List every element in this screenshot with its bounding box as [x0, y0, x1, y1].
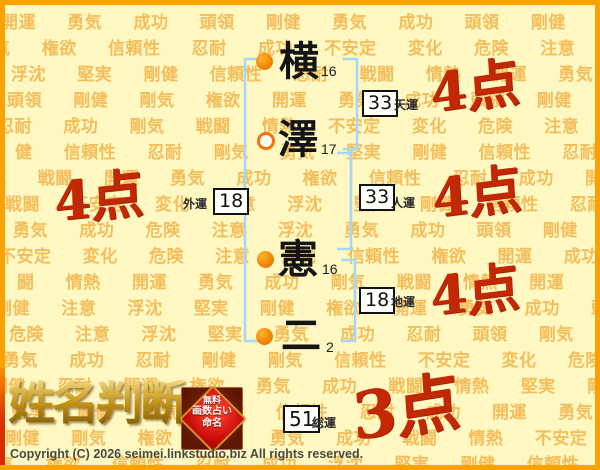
stroke-count: 2	[326, 340, 334, 354]
page-frame: 開運 勇気 成功 頭領 剛健 勇気 成功 頭領 剛健 剛気気 権欲 信頼性 忍耐…	[0, 0, 600, 470]
jinun-score: 4点	[431, 162, 523, 226]
chiun-score: 4点	[429, 260, 521, 324]
name-chart: 横 16 澤 17 憲 16 二 2 33 天運 4点 外運 18 4点 33 …	[0, 0, 600, 470]
name-char-bullet-filled	[256, 328, 273, 345]
gaiun-value-box: 18	[213, 188, 249, 215]
free-naming-badge[interactable]: 無料 画数占い 命名	[181, 387, 243, 450]
tenun-value-box: 33	[362, 90, 398, 117]
jinun-label: 人運	[391, 197, 415, 209]
stroke-count: 17	[321, 142, 337, 156]
site-logo[interactable]: 姓名判断	[8, 380, 184, 427]
heaven-fortune-bracket	[343, 59, 357, 149]
name-character: 横	[279, 42, 319, 82]
copyright-text: Copyright (C) 2026 seimei.linkstudio.biz…	[10, 447, 363, 461]
earth-fortune-bracket	[341, 260, 355, 341]
name-char-bullet-filled	[256, 53, 273, 70]
badge-line: 画数占い	[182, 406, 242, 418]
name-character: 憲	[278, 240, 318, 280]
stroke-count: 16	[321, 64, 337, 78]
badge-text: 無料 画数占い 命名	[182, 395, 242, 430]
souun-label: 総運	[312, 417, 336, 429]
name-character: 澤	[278, 120, 318, 160]
chiun-value-box: 18	[359, 287, 395, 314]
name-char-bullet-filled	[257, 251, 274, 268]
person-fortune-bracket	[337, 153, 351, 249]
badge-line: 無料	[182, 395, 242, 406]
name-character: 二	[281, 316, 321, 356]
tenun-label: 天運	[394, 99, 418, 111]
chiun-label: 地運	[391, 296, 415, 308]
tenun-score: 4点	[429, 56, 522, 122]
badge-line: 命名	[182, 418, 242, 430]
name-char-bullet-open	[257, 132, 275, 150]
gaiun-score: 4点	[53, 167, 144, 229]
jinun-value-box: 33	[359, 184, 395, 211]
gaiun-label: 外運	[183, 198, 207, 210]
souun-score: 3点	[350, 369, 462, 450]
stroke-count: 16	[322, 262, 338, 276]
